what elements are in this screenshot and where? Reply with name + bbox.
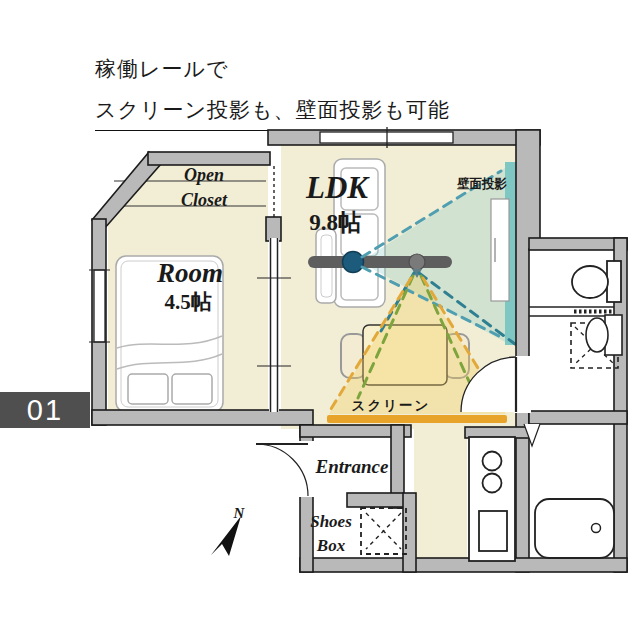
stove-burner [483,474,502,493]
kitchen-sink [479,511,507,551]
window-left [94,270,105,342]
toilet-tank [607,261,621,302]
screen-label: スクリーン [352,399,431,413]
kitchen [469,437,515,561]
wall-bottom [300,558,627,572]
shoes-box-label-line2: Box [317,537,345,554]
bedroom-size: 4.5帖 [164,292,211,313]
wall-room-bottom [92,410,313,425]
open-closet-label-line2: Closet [181,191,227,209]
pillow [172,374,212,404]
projector-dot [343,252,364,273]
wall-closet-top [148,152,270,165]
wall-bath-divider [529,411,627,424]
ldk-size: 9.8帖 [309,211,361,234]
wall-corridor [403,493,416,572]
compass-north-label: N [234,506,245,521]
sliding-door-panel [491,199,509,301]
shoe-rack [361,508,406,554]
entrance-label: Entrance [316,457,389,476]
vanity-sink [586,315,622,355]
stove-burner [483,452,502,471]
wall-service-top [529,238,627,250]
wall-divider-nub [266,217,281,241]
wall-shoesbox-step [347,493,404,507]
bathtub-drain [592,524,601,533]
north-arrow-icon [211,516,241,556]
pillow [128,374,168,404]
wall-projection-label: 壁面投影 [457,178,507,191]
corridor-floor [414,429,467,562]
open-closet-label-line1: Open [184,166,224,184]
ldk-label: LDK [306,172,368,203]
bathtub [535,499,614,558]
toilet-bowl [572,266,608,298]
toilet-door [529,307,614,316]
shoes-box-label-line1: Shoes [310,513,352,530]
entrance-door [256,441,315,497]
bedroom-label: Room [157,260,223,287]
rail-position-secondary [409,254,425,270]
toilet [572,261,621,302]
screen-bar [327,415,507,423]
floor-plan-page: 稼働レールで スクリーン投影も、壁面投影も可能 01 [0,0,640,640]
